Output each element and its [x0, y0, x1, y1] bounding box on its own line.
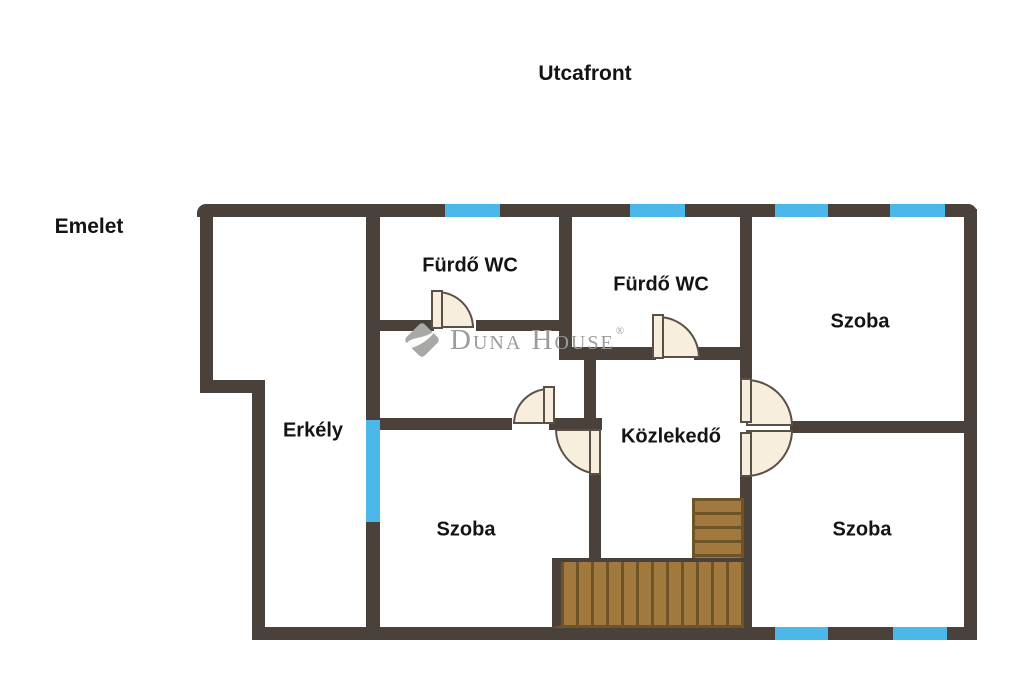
window-bottom-1 [775, 627, 828, 640]
wall-outer-top [197, 204, 977, 217]
room-label-room-bottom-left: Szoba [437, 519, 496, 542]
window-top-3 [775, 204, 828, 217]
room-label-bathroom1: Fürdő WC [422, 255, 518, 278]
room-label-hallway: Közlekedő [621, 426, 721, 449]
wall-balcony-left-lower [252, 380, 265, 640]
room-label-bathroom2: Fürdő WC [613, 274, 709, 297]
watermark: Duna House® [398, 316, 623, 364]
window-top-1 [445, 204, 500, 217]
wall-outer-left-upper [200, 209, 213, 393]
watermark-brand-text: Duna House [450, 326, 615, 355]
floor-caption: Emelet [55, 215, 124, 239]
stairs-lower-flight [552, 558, 744, 628]
window-balcony [366, 420, 380, 522]
window-top-2 [630, 204, 685, 217]
door-leaf-room-top-right [740, 378, 752, 423]
wall-outer-right [964, 209, 977, 640]
wall-room-bl-top-left [378, 418, 512, 430]
door-leaf-room-bottom-left [589, 429, 601, 475]
door-leaf-bathroom2 [652, 314, 664, 359]
room-label-room-bottom-right: Szoba [833, 519, 892, 542]
wall-anteroom-right [584, 358, 596, 420]
door-arc-bathroom2 [658, 316, 700, 358]
window-bottom-2 [893, 627, 947, 640]
door-arc-room-bottom-right [746, 430, 793, 477]
door-leaf-anteroom [543, 386, 555, 424]
window-top-4 [890, 204, 945, 217]
wall-room-bl-right [589, 474, 601, 562]
wall-outer-bottom [252, 627, 977, 640]
room-label-balcony: Erkély [283, 420, 343, 443]
stairs-upper-flight [692, 498, 744, 562]
door-leaf-room-bottom-right [740, 432, 752, 477]
door-arc-room-top-right [746, 379, 793, 426]
duna-house-logo-icon [398, 316, 446, 364]
street-front-caption: Utcafront [538, 62, 631, 86]
room-label-room-top-right: Szoba [831, 311, 890, 334]
wall-room-right-divider [790, 421, 964, 433]
wall-right-divider-upper [740, 211, 752, 378]
floor-plan: Utcafront Emelet Fürdő WC Fürdő WC [0, 0, 1024, 686]
watermark-registered-mark: ® [616, 325, 624, 337]
